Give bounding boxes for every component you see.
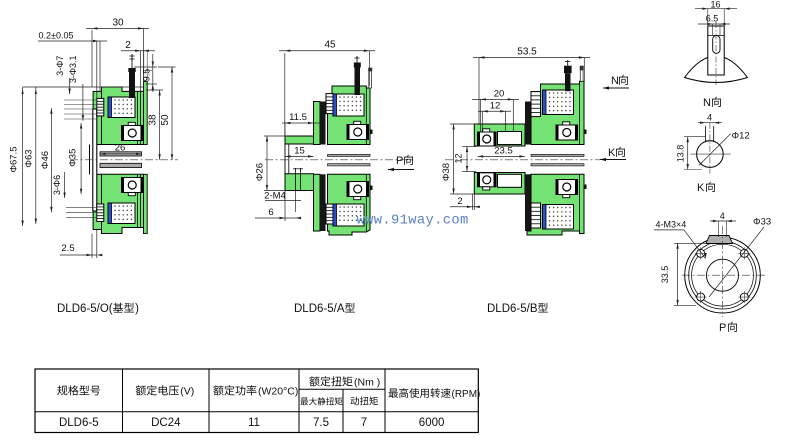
svg-text:20: 20 (494, 89, 505, 100)
svg-text:9.5: 9.5 (142, 69, 152, 82)
svg-text:Φ67.5: Φ67.5 (9, 146, 20, 172)
svg-text:33.5: 33.5 (660, 266, 670, 284)
svg-text:(RPM): (RPM) (452, 389, 481, 400)
svg-text:7: 7 (361, 417, 367, 429)
svg-text:0.2±0.05: 0.2±0.05 (39, 31, 74, 41)
svg-text:N: N (703, 97, 711, 109)
svg-text:23.5: 23.5 (494, 146, 513, 157)
svg-text:Φ26: Φ26 (255, 163, 266, 181)
svg-text:DLD6-5/B: DLD6-5/B (487, 303, 538, 315)
svg-text:3-Φ7: 3-Φ7 (55, 56, 65, 76)
svg-text:50: 50 (160, 114, 171, 126)
svg-text:4: 4 (707, 113, 712, 123)
svg-text:K: K (608, 147, 616, 159)
svg-text:15: 15 (294, 146, 305, 157)
svg-text:38: 38 (148, 114, 159, 126)
svg-text:6.5: 6.5 (706, 14, 719, 24)
svg-text:Φ46: Φ46 (40, 151, 51, 169)
svg-text:DLD6-5/A: DLD6-5/A (294, 303, 345, 315)
svg-text:11: 11 (248, 417, 260, 429)
svg-text:Φ63: Φ63 (24, 149, 35, 167)
svg-text:DLD6-5: DLD6-5 (59, 417, 99, 429)
svg-text:K: K (697, 182, 705, 194)
svg-text:3-Φ6: 3-Φ6 (52, 175, 62, 195)
svg-text:6: 6 (268, 207, 273, 218)
svg-text:2-M4: 2-M4 (264, 191, 286, 202)
svg-text:26: 26 (115, 143, 126, 154)
svg-text:(V): (V) (180, 386, 194, 398)
svg-text:7.5: 7.5 (313, 417, 329, 429)
svg-text:): ) (135, 303, 139, 315)
svg-text:DC24: DC24 (151, 417, 181, 429)
svg-text:11.5: 11.5 (289, 112, 307, 123)
svg-text:Φ35: Φ35 (67, 149, 78, 167)
svg-text:www.91way.com: www.91way.com (357, 214, 469, 229)
svg-text:P: P (396, 155, 403, 167)
svg-text:12: 12 (454, 153, 464, 163)
svg-text:13.8: 13.8 (676, 145, 686, 163)
svg-text:4: 4 (720, 211, 725, 221)
svg-text:3-Φ3.1: 3-Φ3.1 (68, 55, 78, 83)
svg-text:N: N (611, 75, 619, 87)
svg-text:(Nm ): (Nm ) (354, 377, 380, 389)
svg-text:2.5: 2.5 (61, 243, 74, 254)
svg-text:Φ12: Φ12 (732, 131, 750, 142)
svg-text:P: P (719, 322, 726, 334)
svg-text:(W20°C): (W20°C) (258, 386, 298, 398)
svg-text:4-M3×4: 4-M3×4 (656, 220, 687, 230)
svg-text:Φ38: Φ38 (441, 163, 452, 181)
svg-text:2: 2 (125, 40, 131, 51)
svg-text:Φ33: Φ33 (753, 217, 771, 228)
svg-text:45: 45 (324, 40, 336, 51)
svg-text:16: 16 (710, 0, 720, 10)
svg-text:30: 30 (112, 18, 124, 29)
svg-text:2: 2 (457, 196, 462, 207)
svg-text:DLD6-5/O(: DLD6-5/O( (57, 303, 113, 315)
svg-text:12: 12 (490, 101, 501, 112)
svg-text:53.5: 53.5 (517, 47, 537, 58)
svg-text:6000: 6000 (419, 417, 445, 429)
